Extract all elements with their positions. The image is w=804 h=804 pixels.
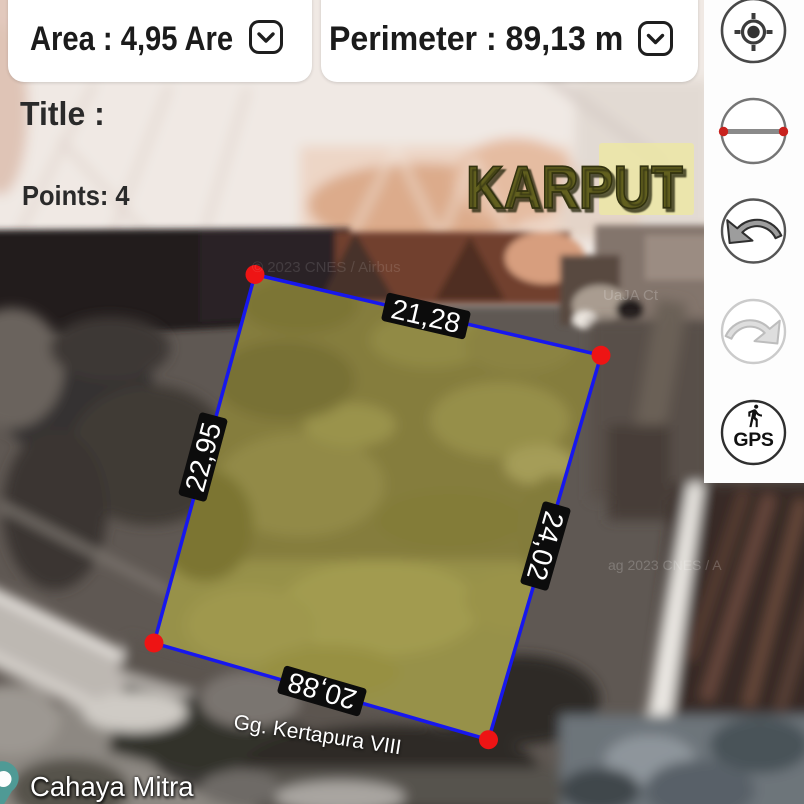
svg-text:UaJA Ct: UaJA Ct bbox=[603, 287, 659, 304]
svg-text:Cahaya Mitra: Cahaya Mitra bbox=[30, 771, 194, 802]
svg-text:GPS: GPS bbox=[733, 429, 774, 451]
svg-text:© 2023 CNES / Airbus: © 2023 CNES / Airbus bbox=[252, 259, 401, 276]
svg-text:KARPUT: KARPUT bbox=[466, 153, 683, 221]
svg-text:ag 2023 CNES / A: ag 2023 CNES / A bbox=[608, 557, 722, 573]
